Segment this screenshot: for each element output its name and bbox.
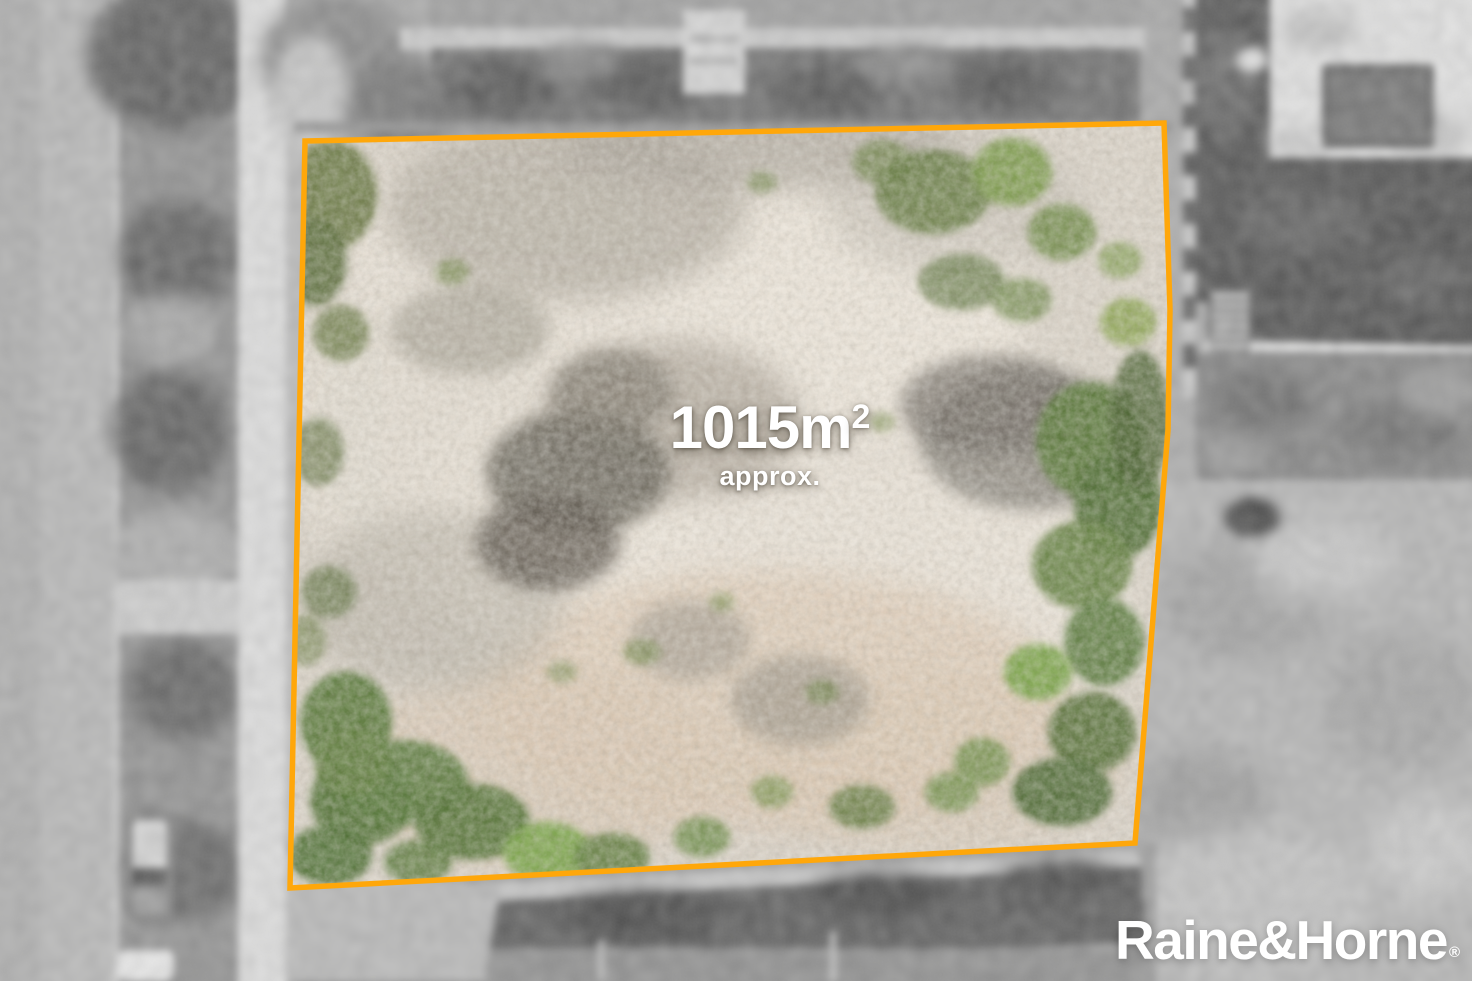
registered-trademark-icon: ®: [1449, 944, 1460, 961]
brand-name: Raine&Horne: [1115, 909, 1447, 971]
area-superscript: 2: [851, 398, 870, 436]
brand-watermark: Raine&Horne®: [1115, 913, 1460, 968]
area-value: 1015m2: [586, 398, 954, 458]
area-number: 1015m: [670, 394, 852, 461]
area-label: 1015m2 approx.: [586, 398, 954, 490]
area-qualifier: approx.: [586, 463, 954, 490]
aerial-photo: 1015m2 approx. Raine&Horne®: [0, 0, 1472, 981]
